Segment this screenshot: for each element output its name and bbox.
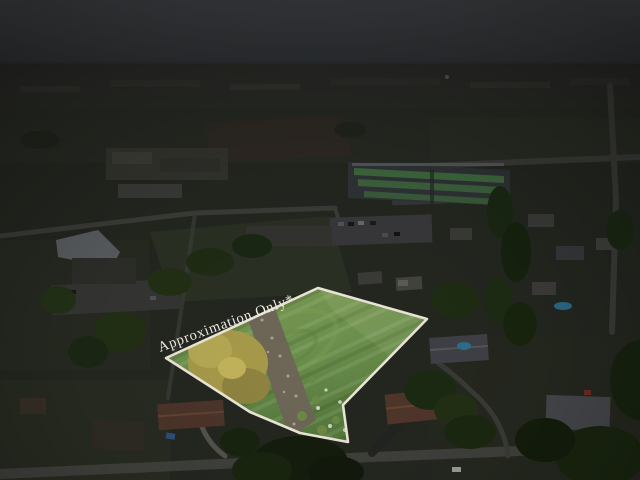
aerial-photo-canvas: Approximation Only* <box>0 0 640 480</box>
aerial-photo: Approximation Only* <box>0 0 640 480</box>
vignette-overlay <box>0 0 640 480</box>
